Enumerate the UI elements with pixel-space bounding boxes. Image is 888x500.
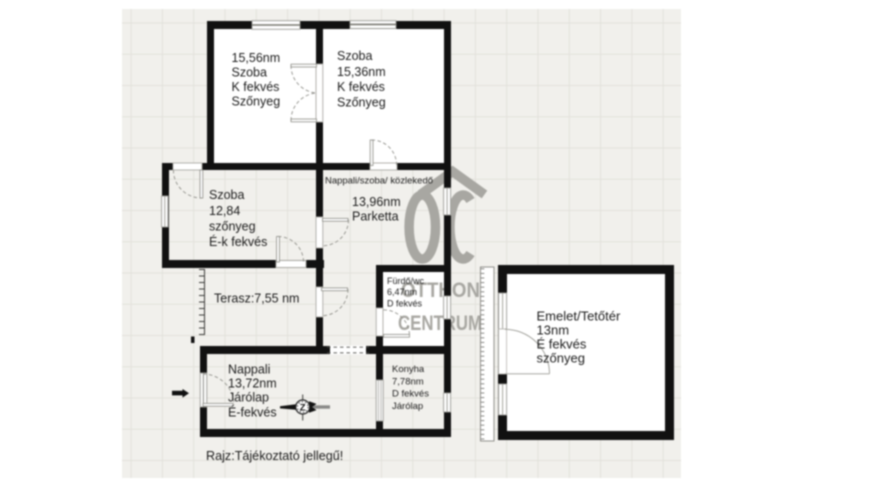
svg-text:15,56nm: 15,56nm (232, 51, 281, 65)
svg-text:Szőnyeg: Szőnyeg (337, 96, 386, 110)
svg-text:Nappali: Nappali (228, 363, 270, 377)
svg-text:Terasz:7,55 nm: Terasz:7,55 nm (214, 292, 299, 306)
svg-text:Parketta: Parketta (352, 210, 399, 224)
svg-text:Fürdő/wc: Fürdő/wc (387, 276, 425, 286)
svg-text:É fekvés: É fekvés (537, 337, 587, 352)
svg-text:szőnyeg: szőnyeg (209, 220, 256, 234)
svg-text:Emelet/Tetőtér: Emelet/Tetőtér (537, 309, 621, 324)
svg-text:K fekvés: K fekvés (337, 80, 385, 94)
svg-text:CENTRUM: CENTRUM (398, 311, 482, 335)
svg-text:szőnyeg: szőnyeg (537, 351, 585, 366)
svg-text:Szőnyeg: Szőnyeg (232, 95, 281, 109)
svg-text:12,84: 12,84 (209, 204, 240, 218)
svg-text:6,47nm: 6,47nm (387, 287, 417, 297)
svg-text:13nm: 13nm (537, 323, 570, 338)
svg-text:7,78nm: 7,78nm (392, 376, 424, 387)
svg-text:D fekvés: D fekvés (387, 299, 423, 309)
svg-text:Konyha: Konyha (392, 364, 425, 375)
svg-text:15,36nm: 15,36nm (337, 65, 386, 79)
svg-text:K fekvés: K fekvés (232, 80, 280, 94)
svg-text:É-fekvés: É-fekvés (228, 405, 277, 420)
svg-text:É-k fekvés: É-k fekvés (209, 234, 267, 249)
svg-text:13,96nm: 13,96nm (352, 195, 401, 209)
svg-text:Z: Z (300, 403, 306, 414)
svg-text:Járólap: Járólap (228, 391, 269, 405)
svg-text:Szoba: Szoba (209, 188, 244, 202)
svg-text:Szoba: Szoba (232, 66, 267, 80)
svg-text:Szoba: Szoba (337, 49, 372, 63)
svg-text:Rajz:Tájékoztató jellegű!: Rajz:Tájékoztató jellegű! (206, 449, 343, 463)
svg-text:13,72nm: 13,72nm (228, 377, 277, 391)
svg-text:Járólap: Járólap (392, 401, 423, 412)
svg-text:D fekvés: D fekvés (392, 389, 429, 400)
svg-text:Nappali/szoba/ közlekedő: Nappali/szoba/ közlekedő (325, 176, 433, 186)
